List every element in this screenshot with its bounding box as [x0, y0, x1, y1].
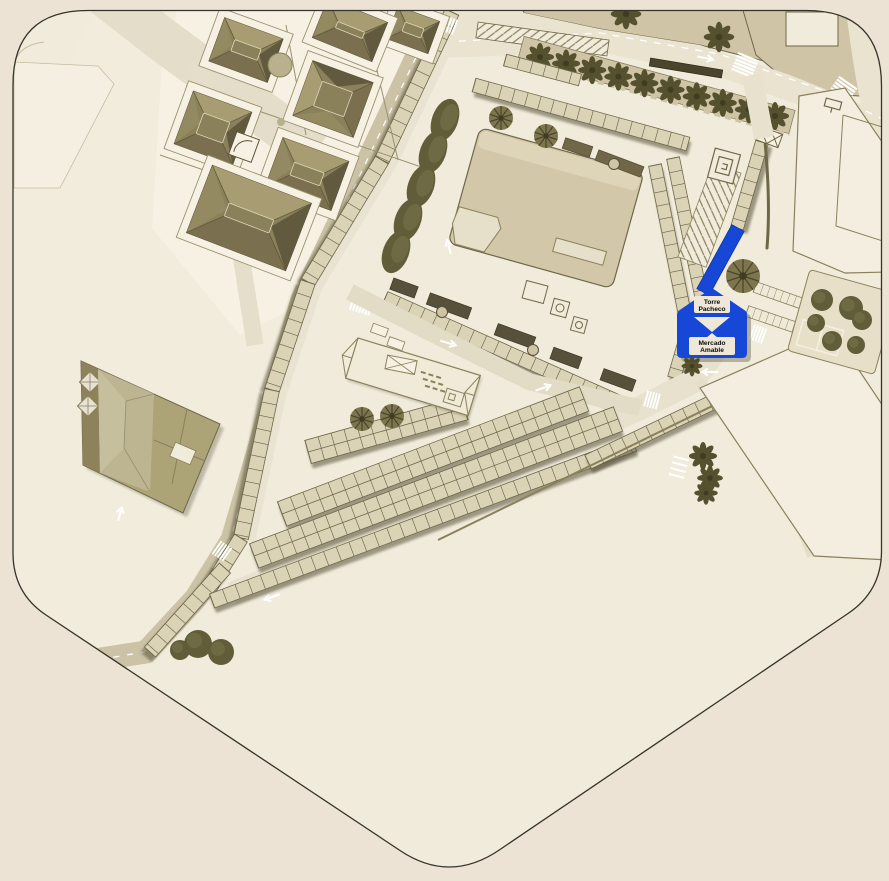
svg-text:Mercado: Mercado — [698, 340, 725, 347]
svg-text:Torre: Torre — [704, 299, 721, 306]
svg-text:Amable: Amable — [700, 347, 724, 354]
svg-text:Pacheco: Pacheco — [698, 306, 725, 313]
